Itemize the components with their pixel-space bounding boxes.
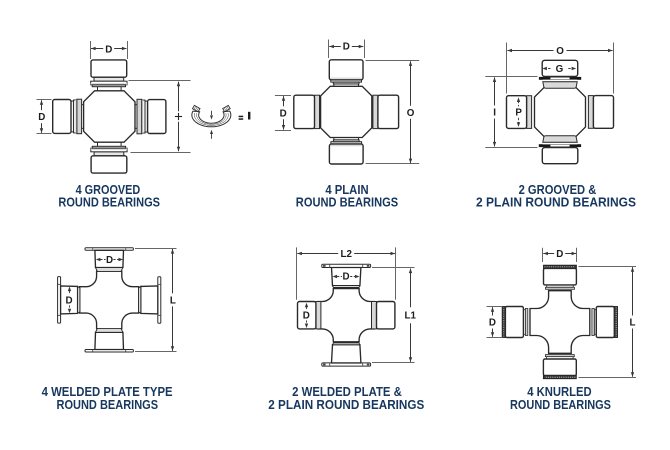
svg-text:ROUND BEARINGS: ROUND BEARINGS [296,195,399,210]
svg-text:2 PLAIN ROUND BEARINGS: 2 PLAIN ROUND BEARINGS [476,195,636,210]
svg-text:D: D [489,318,496,329]
svg-text:L2: L2 [340,249,352,260]
svg-text:D: D [342,272,349,283]
svg-text:D: D [343,42,350,53]
svg-text:P: P [515,108,522,119]
svg-text:D: D [105,44,112,55]
svg-text:L: L [630,318,636,329]
svg-text:D: D [556,249,563,260]
svg-text:O: O [556,46,564,57]
svg-text:D: D [280,108,287,119]
svg-text:I: I [493,108,496,119]
svg-text:ROUND BEARINGS: ROUND BEARINGS [57,397,159,412]
svg-text:ROUND BEARINGS: ROUND BEARINGS [58,195,160,210]
svg-text:2 PLAIN ROUND BEARINGS: 2 PLAIN ROUND BEARINGS [268,397,424,412]
svg-text:D: D [303,311,310,322]
svg-text:ROUND BEARINGS: ROUND BEARINGS [510,397,611,412]
svg-text:O: O [407,108,415,119]
svg-text:L: L [170,295,176,306]
svg-text:L1: L1 [404,311,416,322]
svg-text:G: G [556,64,564,75]
svg-text:D: D [38,112,45,123]
svg-text:D: D [106,255,113,266]
svg-text:D: D [66,295,73,306]
